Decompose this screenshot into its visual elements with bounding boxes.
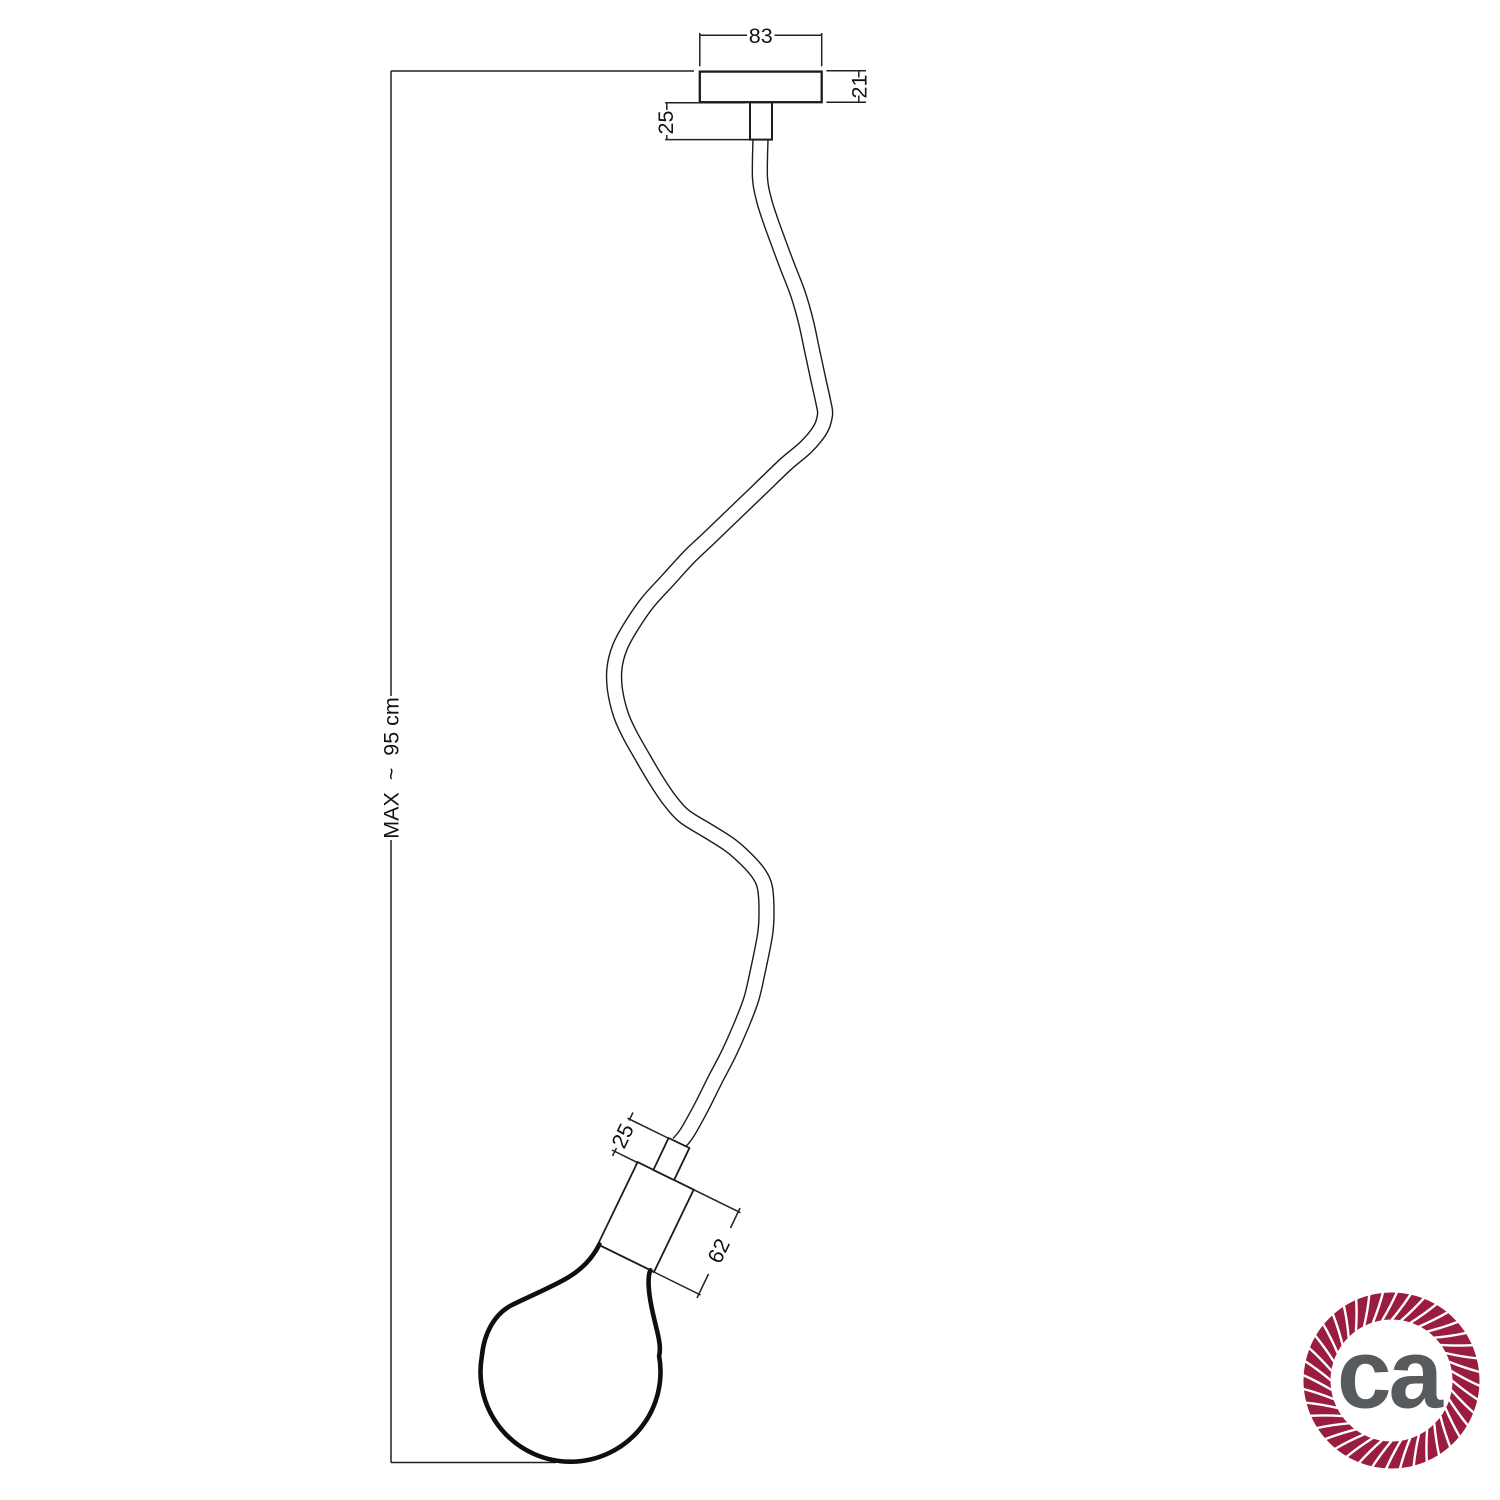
svg-text:25: 25 [654,111,678,135]
svg-text:ca: ca [1337,1319,1445,1429]
svg-text:21: 21 [848,75,872,99]
svg-text:MAX ~ 95 cm: MAX ~ 95 cm [380,697,404,839]
svg-text:83: 83 [749,24,773,48]
